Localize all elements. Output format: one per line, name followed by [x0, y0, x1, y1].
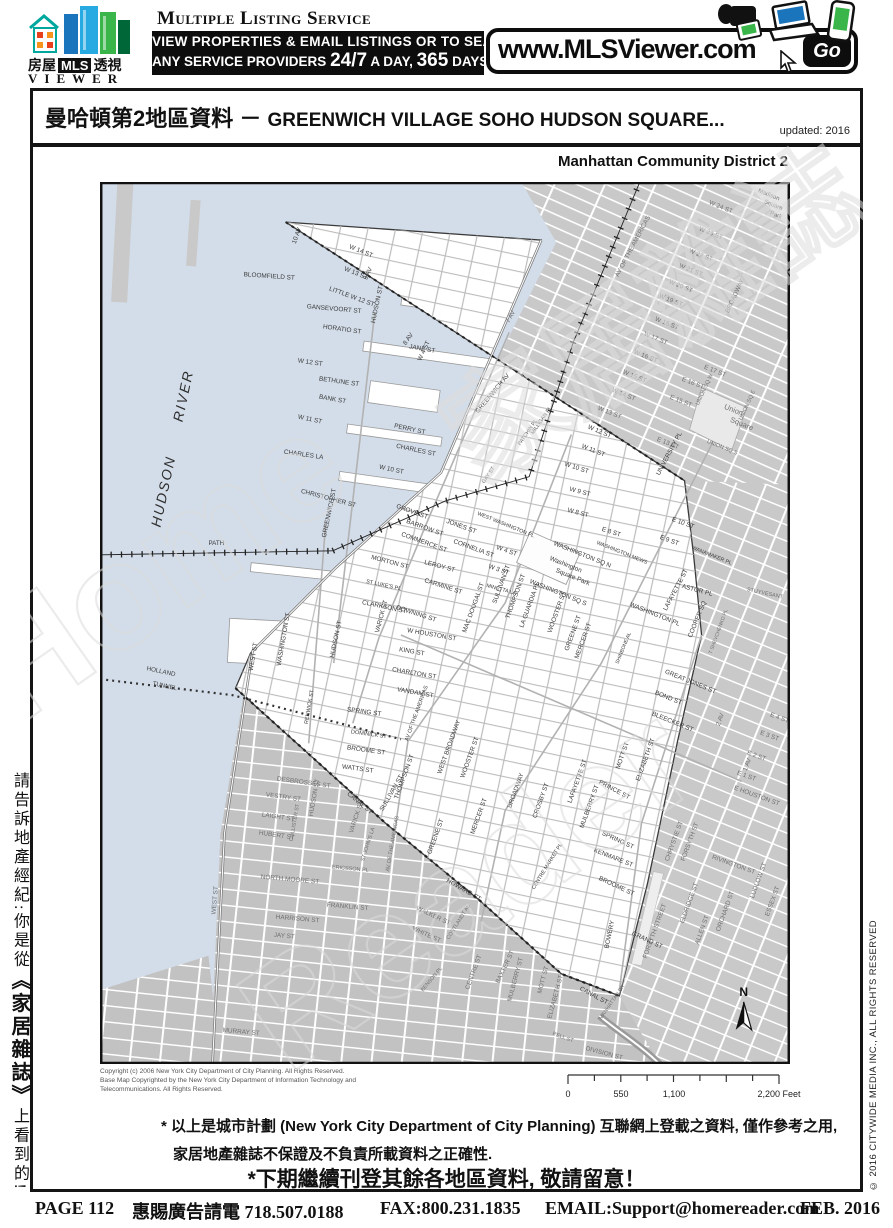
ad-phone: 惠賜廣告請電 718.507.0188 [132, 1198, 344, 1224]
devices-icons [712, 0, 862, 44]
issue-date: FEB. 2016 [800, 1198, 880, 1219]
street-label: PATH [208, 540, 224, 547]
buildings-logo-icon [28, 4, 150, 56]
page-number: PAGE 112 [35, 1198, 114, 1219]
district-map: N HUDSONRIVERPATHHOLLANDTUNNELBLOOMFIELD… [100, 182, 790, 1064]
magazine-name: 《家居雜誌》 [8, 969, 30, 1107]
logo-viewer-text: VIEWER [28, 71, 150, 87]
scale-550: 550 [613, 1089, 628, 1099]
page-title: 曼哈頓第2地區資料 － GREENWICH VILLAGE SOHO HUDSO… [45, 101, 725, 133]
footnote-line1: * 以上是城市計劃 (New York City Department of C… [161, 1115, 837, 1136]
map-scale-bar: 0 550 1,100 2,200 Feet [561, 1069, 823, 1103]
banner-line1: VIEW PROPERTIES & EMAIL LISTINGS OR TO S… [152, 34, 484, 50]
header-banner: VIEW PROPERTIES & EMAIL LISTINGS OR TO S… [152, 31, 484, 75]
map-copyright: Copyright (c) 2006 New York City Departm… [100, 1067, 440, 1095]
left-vertical-note: 請告訴地產經紀:你是從《家居雜誌》上看到的! [5, 772, 34, 1192]
banner-365: 365 [417, 50, 449, 71]
updated-date: updated: 2016 [780, 125, 850, 137]
video-camera-icon [718, 4, 761, 40]
laptop-icon [770, 1, 818, 40]
map-title: Manhattan Community District 2 [558, 153, 788, 170]
scale-1100: 1,100 [663, 1089, 686, 1099]
smartphone-icon [827, 1, 854, 42]
footnote-line2: 家居地產雜誌不保證及不負責所載資料之正確性. [173, 1143, 492, 1164]
map-container: N HUDSONRIVERPATHHOLLANDTUNNELBLOOMFIELD… [100, 182, 790, 1064]
right-copyright: © 2016 CITYWIDE MEDIA INC., ALL RIGHTS R… [868, 935, 879, 1191]
compass-label: N [739, 985, 748, 999]
next-issue-notice: *下期繼續刊登其餘各地區資料, 敬請留意！ [33, 1163, 860, 1193]
mls-viewer-logo: 房屋 MLS 透視 VIEWER [28, 4, 150, 82]
page-header: 房屋 MLS 透視 VIEWER Multiple Listing Servic… [0, 0, 893, 86]
title-bar: 曼哈頓第2地區資料 － GREENWICH VILLAGE SOHO HUDSO… [33, 91, 860, 147]
email-address: EMAIL:Support@homereader.com [545, 1198, 819, 1219]
mls-title: Multiple Listing Service [157, 8, 371, 30]
page-footer: PAGE 112 惠賜廣告請電 718.507.0188 FAX:800.231… [0, 1198, 893, 1226]
scale-0: 0 [565, 1089, 570, 1099]
banner-line2: ANY SERVICE PROVIDERS 24/7 A DAY, 365 DA… [152, 50, 484, 73]
scale-2200: 2,200 Feet [757, 1089, 801, 1099]
content-frame: 曼哈頓第2地區資料 － GREENWICH VILLAGE SOHO HUDSO… [30, 88, 863, 1192]
fax-number: FAX:800.231.1835 [380, 1198, 521, 1219]
cursor-arrow-icon [778, 50, 800, 74]
banner-247: 24/7 [330, 50, 367, 71]
